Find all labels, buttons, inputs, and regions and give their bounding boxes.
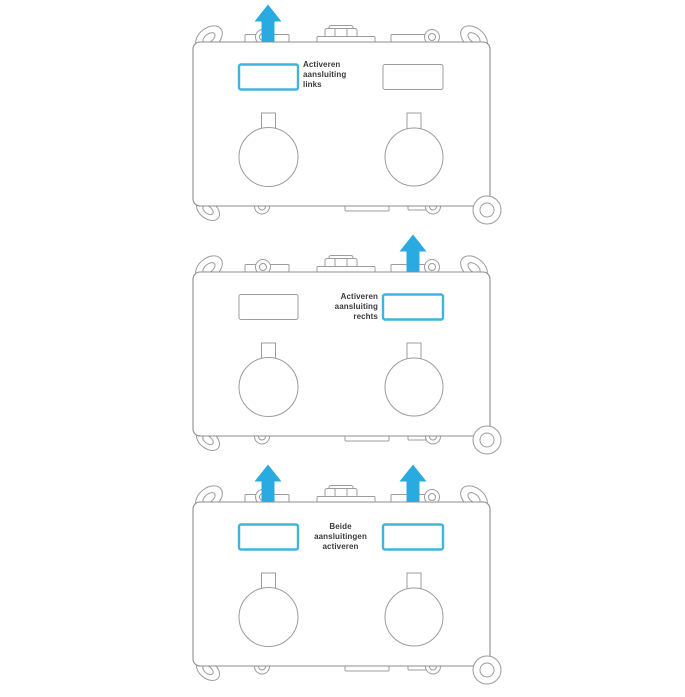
valve-body-illustration [191,481,501,685]
diagram-label-activate-right: Activeren aansluiting rechts [286,292,378,322]
active-slot-highlight-left [239,65,298,90]
active-slot-highlight-left [239,525,298,550]
diagram-label-activate-both: Beide aansluitingen activeren [296,522,385,552]
label-line: aansluiting [303,70,395,80]
label-line: links [303,80,395,90]
label-line: Beide [296,522,385,532]
diagram-activate-left [171,0,511,237]
diagram-activate-right [171,227,511,467]
active-slot-highlight-right [383,295,443,320]
diagram-label-activate-left: Activeren aansluiting links [303,60,395,90]
valve-body-illustration [191,21,501,225]
valve-body-illustration [191,251,501,455]
label-line: aansluitingen [296,532,385,542]
active-slot-highlight-right [383,525,443,550]
label-line: activeren [296,542,385,552]
diagram-activate-both [171,457,511,697]
label-line: Activeren [286,292,378,302]
label-line: rechts [286,312,378,322]
installation-diagram-sheet: Activeren aansluiting links Activeren aa… [0,0,685,685]
label-line: aansluiting [286,302,378,312]
label-line: Activeren [303,60,395,70]
